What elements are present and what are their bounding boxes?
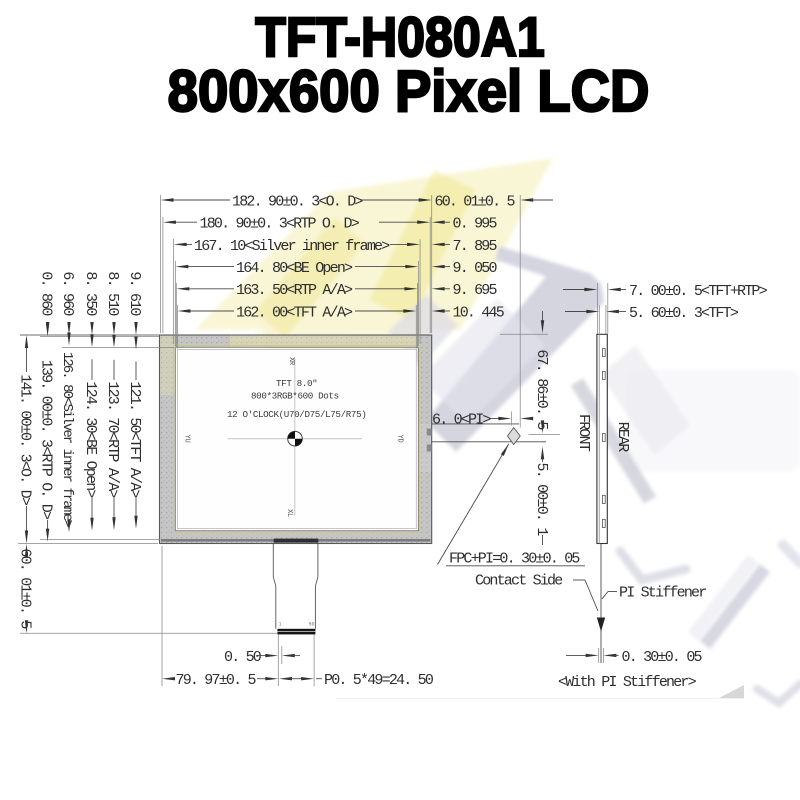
- svg-text:124. 30<BE Open>: 124. 30<BE Open>: [82, 381, 99, 498]
- svg-text:Contact Side: Contact Side: [475, 573, 563, 590]
- svg-text:8. 350: 8. 350: [82, 271, 99, 316]
- svg-text:5. 60±0. 3<TFT>: 5. 60±0. 3<TFT>: [629, 305, 739, 322]
- svg-text:7. 895: 7. 895: [453, 238, 498, 255]
- svg-text:180. 90±0. 3<RTP O. D>: 180. 90±0. 3<RTP O. D>: [200, 216, 360, 233]
- svg-text:800*3RGB*600 Dots: 800*3RGB*600 Dots: [251, 390, 339, 401]
- svg-text:YD: YD: [396, 435, 404, 443]
- svg-text:XR: XR: [287, 357, 295, 366]
- svg-text:79. 97±0. 5: 79. 97±0. 5: [176, 672, 257, 689]
- svg-text:0. 30±0. 05: 0. 30±0. 05: [622, 649, 703, 666]
- svg-text:162. 00<TFT A/A>: 162. 00<TFT A/A>: [236, 304, 353, 321]
- svg-text:167. 10<Silver inner frame>: 167. 10<Silver inner frame>: [194, 238, 390, 255]
- svg-text:0. 50: 0. 50: [224, 649, 262, 666]
- svg-text:9. 610: 9. 610: [126, 271, 143, 316]
- svg-text:67. 86±0. 5: 67. 86±0. 5: [533, 349, 550, 430]
- svg-text:164. 80<BE Open>: 164. 80<BE Open>: [236, 260, 353, 277]
- svg-text:12 O′CLOCK(U70/D75/L75/R75): 12 O′CLOCK(U70/D75/L75/R75): [227, 409, 366, 420]
- svg-text:139. 00±0. 3<RTP O. D>: 139. 00±0. 3<RTP O. D>: [38, 360, 55, 520]
- svg-text:FRONT: FRONT: [575, 414, 592, 452]
- svg-text:5. 00±0. 1: 5. 00±0. 1: [533, 462, 550, 536]
- svg-text:126. 80<Silver inner frame>: 126. 80<Silver inner frame>: [59, 352, 75, 528]
- svg-text:0. 995: 0. 995: [453, 216, 498, 233]
- svg-text:800x600 Pixel LCD: 800x600 Pixel LCD: [168, 58, 650, 123]
- svg-text:60. 01±0. 5: 60. 01±0. 5: [435, 193, 516, 210]
- svg-text:1: 1: [279, 622, 282, 628]
- svg-text:141. 00±0. 3<O. D>: 141. 00±0. 3<O. D>: [17, 374, 34, 505]
- svg-text:182. 90±0. 3<O. D>: 182. 90±0. 3<O. D>: [232, 193, 363, 210]
- svg-text:REAR: REAR: [614, 422, 631, 453]
- svg-text:<With PI Stiffener>: <With PI Stiffener>: [558, 674, 697, 691]
- svg-text:6. 0<PI>: 6. 0<PI>: [432, 411, 491, 428]
- svg-text:60. 01±0. 5: 60. 01±0. 5: [17, 548, 34, 629]
- svg-text:XL: XL: [285, 509, 293, 517]
- svg-text:7. 00±0. 5<TFT+RTP>: 7. 00±0. 5<TFT+RTP>: [629, 283, 768, 300]
- svg-text:TFT 8.0″: TFT 8.0″: [276, 378, 317, 389]
- svg-text:PI Stiffener: PI Stiffener: [619, 585, 706, 602]
- svg-text:P0. 5*49=24. 50: P0. 5*49=24. 50: [324, 672, 434, 689]
- svg-text:YU: YU: [183, 435, 191, 443]
- svg-text:121. 50<TFT A/A>: 121. 50<TFT A/A>: [126, 381, 143, 498]
- svg-text:10. 445: 10. 445: [453, 304, 505, 321]
- svg-text:163. 50<RTP A/A>: 163. 50<RTP A/A>: [236, 282, 353, 299]
- svg-text:FPC+PI=0. 30±0. 05: FPC+PI=0. 30±0. 05: [449, 551, 580, 568]
- svg-text:9. 695: 9. 695: [453, 282, 498, 299]
- svg-text:123. 70<RTP A/A>: 123. 70<RTP A/A>: [104, 381, 121, 498]
- svg-text:6. 960: 6. 960: [59, 271, 76, 316]
- svg-text:0. 860: 0. 860: [38, 271, 55, 316]
- svg-text:50: 50: [309, 622, 315, 628]
- svg-text:8. 510: 8. 510: [104, 271, 121, 316]
- svg-text:9. 050: 9. 050: [453, 260, 498, 277]
